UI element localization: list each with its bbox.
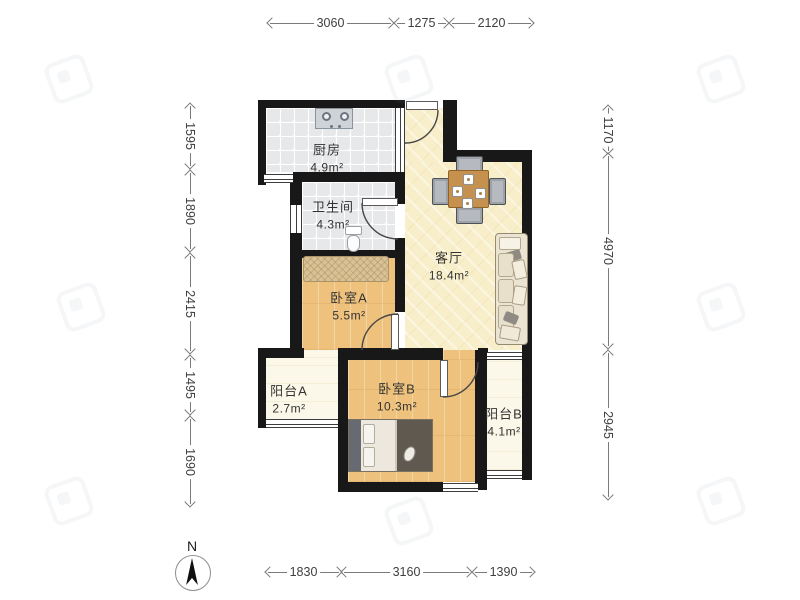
dimension-value: 3060 [314, 16, 348, 30]
kitchen-window [264, 174, 293, 183]
bedroom-b-door [440, 360, 448, 397]
room-area: 18.4m² [429, 269, 469, 283]
balcony-b-label: 阳台B 4.1m² [485, 404, 523, 439]
bedroom-a-bed [303, 256, 389, 282]
sofa-pillow [511, 259, 528, 280]
living-balcony-b-opening [487, 352, 522, 360]
entrance-door [406, 101, 438, 110]
toilet-bowl [347, 235, 360, 252]
watermark [694, 280, 748, 334]
knob-icon [330, 125, 333, 128]
dimension-top: 1275 [396, 16, 447, 30]
wall [258, 348, 266, 428]
dimension-value: 3160 [390, 565, 424, 579]
watermark [382, 52, 436, 106]
room-name: 卧室B [377, 379, 417, 398]
bathroom-window [290, 205, 302, 233]
bedroom-b-window [443, 483, 478, 492]
dimension-right: 1170 [601, 107, 615, 152]
bedroom-a-door [391, 314, 399, 350]
room-area: 4.3m² [312, 218, 354, 232]
dining-chair [432, 178, 449, 205]
sofa-pillow [499, 324, 521, 341]
stove [315, 108, 353, 129]
dimension-left: 1495 [183, 357, 197, 413]
dimension-value: 2120 [475, 16, 509, 30]
wall [258, 100, 405, 108]
room-area: 4.9m² [310, 161, 343, 175]
dimension-right: 2945 [601, 352, 615, 498]
bathroom-door [362, 198, 398, 206]
bedroom-b-label: 卧室B 10.3m² [377, 379, 417, 414]
room-name: 卧室A [330, 288, 368, 307]
balcony-b-window [487, 470, 522, 479]
sofa [495, 233, 528, 345]
room-area: 5.5m² [330, 309, 368, 323]
bedroom-b-door-threshold [443, 350, 475, 360]
room-name: 厨房 [310, 140, 343, 159]
plate-icon [452, 186, 463, 197]
watermark [382, 494, 436, 548]
dimension-left: 1690 [183, 418, 197, 505]
room-area: 10.3m² [377, 400, 417, 414]
watermark [694, 474, 748, 528]
bed-blanket [395, 420, 432, 471]
wall [338, 482, 443, 492]
dimension-value: 1830 [287, 565, 321, 579]
room-name: 阳台A [270, 381, 308, 400]
bathroom-label: 卫生间 4.3m² [312, 197, 354, 232]
burner-icon [322, 112, 331, 121]
dimension-value: 2945 [601, 408, 615, 442]
knob-icon [338, 125, 341, 128]
bedroom-a-label: 卧室A 5.5m² [330, 288, 368, 323]
watermark [694, 52, 748, 106]
dimension-value: 1275 [405, 16, 439, 30]
wall [338, 350, 348, 492]
dimension-bottom: 1830 [267, 565, 340, 579]
balcony-a-label: 阳台A 2.7m² [270, 381, 308, 416]
sofa-pillow [512, 285, 528, 306]
watermark [42, 52, 96, 106]
dimension-top: 3060 [269, 16, 392, 30]
dimension-left: 2415 [183, 255, 197, 352]
room-name: 客厅 [429, 248, 469, 267]
dimension-value: 1170 [601, 113, 615, 146]
watermark [54, 280, 108, 334]
dimension-left: 1595 [183, 105, 197, 167]
dimension-value: 1595 [183, 119, 197, 153]
kitchen-sliding-door [395, 108, 405, 172]
dining-chair [489, 178, 506, 205]
dimension-value: 2415 [183, 287, 197, 321]
balcony-a-threshold [304, 350, 338, 358]
kitchen-label: 厨房 4.9m² [310, 140, 343, 175]
plate-icon [463, 174, 474, 185]
room-area: 2.7m² [270, 402, 308, 416]
bed-pillow [363, 424, 375, 444]
sofa-pillow [499, 237, 521, 250]
dimension-right: 4970 [601, 155, 615, 347]
dimension-value: 1495 [183, 368, 197, 402]
room-name: 阳台B [485, 404, 523, 423]
wall [522, 358, 532, 480]
dimension-value: 1890 [183, 194, 197, 228]
living-room-floor-upper [405, 108, 443, 162]
north-label: N [187, 538, 197, 554]
dimension-left: 1890 [183, 172, 197, 250]
dimension-bottom: 3160 [343, 565, 470, 579]
dimension-top: 2120 [451, 16, 532, 30]
balcony-a-window [266, 419, 338, 428]
living-room-label: 客厅 18.4m² [429, 248, 469, 283]
wall [258, 100, 266, 185]
dimension-value: 4970 [601, 234, 615, 268]
burner-icon [340, 112, 349, 121]
room-area: 4.1m² [485, 425, 523, 439]
dimension-value: 1690 [183, 445, 197, 479]
dining-chair [456, 207, 483, 224]
bed-headboard [349, 420, 361, 471]
plate-icon [475, 188, 486, 199]
plate-icon [462, 198, 473, 209]
room-name: 卫生间 [312, 197, 354, 216]
bed-pillow [363, 447, 375, 467]
bedroom-b-bed [348, 419, 433, 472]
floorplan-page: { "rooms": { "kitchen": {"name": "厨房", "… [0, 0, 800, 600]
dining-table [448, 170, 489, 208]
dimension-bottom: 1390 [474, 565, 533, 579]
dimension-value: 1390 [487, 565, 521, 579]
watermark [42, 474, 96, 528]
